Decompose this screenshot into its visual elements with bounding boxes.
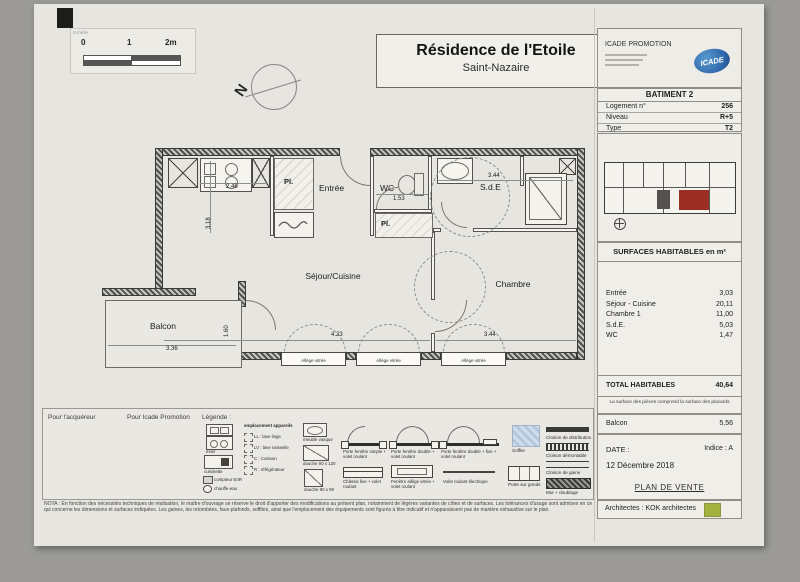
door-arc: [463, 426, 480, 443]
architects-label: Architectes : KOK architectes: [605, 505, 696, 512]
porte-fenetre-double-fixe-icon: [441, 423, 499, 447]
key-plan-wall: [623, 163, 624, 213]
window-allege: Allège vitrée: [281, 352, 346, 366]
dim-balcon-height: 1.60: [224, 325, 230, 337]
fenetre-inner: [397, 468, 427, 475]
row-label: Niveau: [606, 113, 628, 123]
legend-c-label: C : Cuisson: [254, 456, 277, 461]
key-plan-wall: [685, 163, 686, 187]
scale-bar-panel: Echelle 0 1 2m: [70, 28, 196, 74]
surfaces-header: SURFACES HABITABLES en m²: [598, 243, 741, 262]
legend-ll-label: LL : lave linge: [254, 434, 281, 439]
dim-sde-width: 3.44: [488, 173, 500, 179]
door-arc: [347, 426, 365, 444]
legend-r-label: R : réfrigérateur: [254, 467, 285, 472]
legend-cuisinette-label: cuisinette: [204, 469, 223, 474]
room-label-sde: S.d.E: [480, 182, 501, 192]
legend-porte-gonds-label: Porte sur gonds: [508, 482, 540, 487]
porte-fenetre-simple-icon: [343, 423, 383, 447]
architects-logo: [704, 503, 721, 517]
kitchenette-icon: [204, 455, 233, 469]
legend-vasque-label: meuble vasque: [303, 437, 333, 442]
balcon-value: 5,56: [719, 415, 733, 432]
surface-row: Chambre 111,00: [598, 310, 741, 321]
icade-logo-text: ICADE: [700, 55, 725, 68]
interior-wall: [431, 333, 435, 352]
dim-line: [164, 340, 430, 341]
window-allege: Allège vitrée: [356, 352, 421, 366]
legend-douche120-label: douche 90 x 120: [303, 461, 335, 466]
interior-wall: [520, 156, 524, 186]
dim-line: [436, 340, 576, 341]
end-cap: [379, 441, 387, 449]
wall-left: [155, 148, 163, 296]
room-label-wc: WC: [380, 183, 394, 193]
closet-pl1: [274, 158, 314, 210]
signature-promoter-label: Pour Icade Promotion: [127, 414, 190, 421]
surface-value: 3,03: [719, 289, 733, 300]
chassis-line: [344, 471, 382, 472]
legend-chauffe-label: chauffe-eau: [214, 486, 237, 491]
balcon-label: Balcon: [606, 415, 627, 432]
legend-chassis-label: Châssis fixe + volet roulant: [343, 479, 385, 490]
room-label-balcon: Balcon: [150, 321, 176, 331]
dashed-box-icon: [244, 466, 253, 475]
porte-fenetre-double-icon: [391, 423, 435, 447]
floor-plan: Balcon 3.36 1.60 Pl. Pl.: [88, 133, 600, 401]
wall-bottom-segment: [346, 352, 356, 360]
key-plan-compass-icon: [614, 218, 626, 230]
meter-icon: [203, 476, 213, 484]
total-row: TOTAL HABITABLES40,64: [598, 379, 741, 393]
hob-plate: [220, 440, 228, 448]
window-swing: [358, 324, 420, 353]
legend-evier-label: évier: [206, 449, 216, 454]
legend-title: Légende :: [202, 414, 231, 421]
promoter-name: ICADE PROMOTION: [605, 41, 672, 48]
page-title: Résidence de l'Etoile: [377, 42, 615, 60]
turning-circle: [430, 157, 510, 237]
wall-top-right: [370, 148, 585, 156]
key-plan-core: [657, 190, 670, 209]
surface-row: WC1,47: [598, 331, 741, 342]
sill-bar: [343, 443, 383, 446]
surface-label: Séjour - Cuisine: [606, 300, 656, 311]
dashed-box-icon: [244, 433, 253, 442]
divider: [598, 375, 741, 376]
window-label: Allège vitrée: [301, 358, 326, 363]
surface-row: Entrée3,03: [598, 289, 741, 300]
plan-type-label: PLAN DE VENTE: [598, 483, 741, 492]
douche90-icon: [304, 469, 323, 487]
kitchenette-dark-block: [221, 458, 229, 466]
batiment-table: BATIMENT 2 Logement n°256 NiveauR+5 Type…: [597, 88, 742, 132]
legend-mur-label: Mur + doublage: [546, 490, 578, 495]
mur-doublage-swatch: [546, 478, 591, 489]
compass-cross: [614, 223, 624, 224]
indice-label: Indice : A: [704, 445, 733, 452]
window-allege: Allège vitrée: [441, 352, 506, 366]
scale-bar-segment: [83, 60, 133, 66]
wall-bottom-segment: [506, 352, 577, 360]
end-cap: [439, 441, 447, 449]
door-arc: [412, 426, 429, 443]
legend-cloison-gaine-label: Cloison de gaine: [546, 470, 580, 475]
cloison-demontable-swatch: [546, 443, 589, 451]
cloison-distribution-swatch: [546, 427, 589, 432]
room-label-chambre: Chambre: [473, 279, 553, 289]
dashed-box-icon: [244, 455, 253, 464]
hob-burner-icon: [225, 163, 238, 176]
entrance-door-arc: [340, 156, 370, 186]
legend-soffite-label: Soffite: [512, 448, 525, 453]
window-label: Allège vitrée: [461, 358, 486, 363]
date-label: DATE :: [606, 445, 630, 454]
room-label-entree: Entrée: [319, 183, 344, 193]
douche120-icon: [303, 445, 329, 461]
porte-gonds-line: [529, 467, 530, 480]
surface-row: S.d.E.5,03: [598, 321, 741, 332]
window-swing: [284, 324, 346, 353]
room-label-pl1: Pl.: [284, 177, 293, 186]
balcony-door-arc: [246, 300, 276, 330]
surface-row: Séjour - Cuisine20,11: [598, 300, 741, 311]
appliance-box-icon: [168, 158, 198, 188]
water-heater-box: [274, 212, 314, 238]
date-box: DATE : Indice : A 12 Décembre 2018 PLAN …: [597, 434, 742, 500]
icade-logo: ICADE: [692, 46, 732, 76]
hob-icon: [206, 436, 233, 450]
soffite-swatch: [512, 425, 540, 447]
hob-plate: [210, 440, 218, 448]
row-label: Logement n°: [606, 102, 646, 112]
porte-gonds-line: [519, 467, 520, 480]
dim-sejour-width: 4.23: [331, 332, 343, 338]
scale-bar-segment: [131, 60, 181, 66]
porte-gonds-icon: [508, 466, 540, 481]
promoter-address-line: [605, 54, 647, 56]
surface-value: 11,00: [716, 310, 733, 321]
legend-lv-label: LV : lave vaisselle: [254, 445, 289, 450]
dim-balcon-width: 3.36: [166, 346, 178, 352]
scanned-floor-plan-page: { "scale_bar": {"label": "Echelle", "tic…: [0, 0, 800, 582]
promoter-address-line: [605, 64, 639, 66]
dim-line: [438, 180, 573, 181]
surface-label: Entrée: [606, 289, 627, 300]
legend-compteur-label: compteur EnR: [214, 477, 242, 482]
end-cap: [341, 441, 349, 449]
key-plan-highlighted-unit: [679, 190, 709, 210]
legend-volet-label: Volet roulant électrique: [443, 479, 495, 484]
sink-bowl: [220, 427, 229, 434]
dim-kitchen-height: 3.18: [206, 217, 212, 229]
key-plan-wall: [643, 163, 644, 187]
table-row: Logement n°256: [598, 102, 741, 113]
total-label: TOTAL HABITABLES: [606, 379, 675, 393]
balcony-outline: [105, 300, 242, 368]
volet-electrique-icon: [443, 471, 495, 473]
paper-fold-line: [594, 8, 595, 542]
sink-bowl: [210, 427, 219, 434]
heater-icon: [203, 485, 212, 493]
shower-inner: [529, 177, 562, 220]
dim-chambre-width: 3.44: [484, 332, 496, 338]
vasque-icon: [303, 423, 327, 437]
fixed-pane: [483, 439, 497, 445]
date-value: 12 Décembre 2018: [606, 461, 674, 470]
legend-pf-simple-label: Porte fenêtre simple + volet roulant: [343, 449, 388, 460]
dim-wc-width: 1.53: [393, 196, 405, 202]
architects-row: Architectes : KOK architectes: [597, 500, 742, 519]
scale-tick-2m: 2m: [165, 38, 177, 47]
dashed-box-icon: [244, 444, 253, 453]
divider: [598, 396, 741, 397]
key-plan-wall: [709, 163, 710, 213]
batiment-header: BATIMENT 2: [598, 89, 741, 102]
water-heater-squiggle: [277, 217, 309, 231]
interior-wall: [370, 156, 374, 236]
fenetre-allege-icon: [391, 465, 433, 478]
wall-right: [577, 148, 585, 360]
toilet-tank-icon: [414, 173, 424, 196]
scale-bar-caption: Echelle: [73, 30, 88, 36]
promoter-box: ICADE PROMOTION ICADE: [597, 28, 742, 88]
legend-band: Pour l'acquéreur Pour Icade Promotion Lé…: [42, 408, 594, 500]
surface-label: Chambre 1: [606, 310, 641, 321]
sill-bar: [391, 443, 435, 446]
wall-top-left: [155, 148, 340, 156]
title-block: Résidence de l'Etoile Saint-Nazaire: [376, 34, 616, 88]
door-arc: [396, 426, 413, 443]
legend-cloison-dem-label: Cloison démontable: [546, 453, 587, 458]
legend-pf-double-fixe-label: Porte fenêtre double + fixe + volet roul…: [441, 449, 499, 460]
legend-pf-double-label: Porte fenêtre double + volet roulant: [391, 449, 436, 460]
dim-line: [376, 194, 428, 195]
row-value: 256: [721, 102, 733, 112]
surface-label: WC: [606, 331, 618, 342]
surfaces-list: Entrée3,03 Séjour - Cuisine20,11 Chambre…: [598, 289, 741, 342]
appareils-header: emplacement appareils: [244, 423, 293, 428]
row-value: R+5: [720, 113, 733, 123]
key-plan-building: [604, 162, 736, 214]
balcony-top-wall: [102, 288, 196, 296]
key-plan-box: [597, 133, 742, 242]
surfaces-box: SURFACES HABITABLES en m² Entrée3,03 Séj…: [597, 242, 742, 414]
page-subtitle: Saint-Nazaire: [377, 62, 615, 74]
end-cap: [389, 441, 397, 449]
window-swing: [443, 324, 505, 353]
sink-icon: [206, 424, 233, 436]
surface-value: 20,11: [716, 300, 733, 311]
dim-kitchen-width: 2.46: [226, 184, 238, 190]
promoter-address-line: [605, 59, 643, 61]
room-label-sejour: Séjour/Cuisine: [268, 271, 398, 281]
signature-buyer-label: Pour l'acquéreur: [48, 414, 96, 421]
cloison-gaine-swatch: [546, 461, 589, 468]
surface-value: 1,47: [719, 331, 733, 342]
nota-text: NOTA : En fonction des nécessités techni…: [44, 501, 592, 514]
balcon-row: Balcon5,56: [597, 414, 742, 434]
surface-label: S.d.E.: [606, 321, 625, 332]
scan-artifact-bar: [57, 8, 73, 28]
legend-cloison-dist-label: Cloison de distribution: [546, 435, 591, 440]
scale-tick-1: 1: [127, 38, 131, 47]
vasque-bowl: [307, 426, 323, 435]
legend-fenetre-label: Fenêtre allège vitrée + volet roulant: [391, 479, 439, 490]
surface-value: 5,03: [719, 321, 733, 332]
end-cap: [431, 441, 439, 449]
key-plan-wall: [605, 187, 735, 188]
scale-tick-0: 0: [81, 38, 85, 47]
room-label-pl2: Pl.: [381, 219, 390, 228]
door-arc: [447, 426, 464, 443]
window-label: Allège vitrée: [376, 358, 401, 363]
wall-bottom-segment: [421, 352, 441, 360]
table-row: NiveauR+5: [598, 113, 741, 124]
surfaces-note: La surface des pièces comprend la surfac…: [598, 400, 741, 405]
chassis-fixe-icon: [343, 467, 383, 478]
legend-douche90-label: douche 90 x 90: [304, 487, 334, 492]
total-value: 40,64: [715, 379, 733, 393]
